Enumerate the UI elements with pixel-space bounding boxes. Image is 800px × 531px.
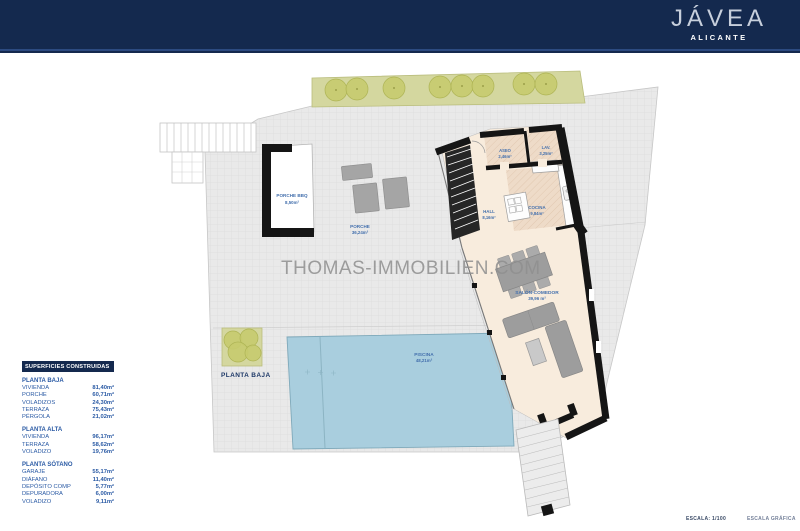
- row-value: 21,02m²: [92, 414, 114, 421]
- table-row: VOLADIZO9,11m²: [22, 499, 114, 506]
- row-value: 19,76m²: [92, 449, 114, 456]
- table-row: TERRAZA58,62m²: [22, 442, 114, 449]
- section-title: PLANTA BAJA: [22, 377, 114, 385]
- row-value: 60,71m²: [92, 392, 114, 399]
- room-label: ASEO: [499, 148, 512, 153]
- planting-strip: [312, 71, 585, 107]
- tree-icons: [224, 329, 261, 362]
- table-row: VOLADIZO19,76m²: [22, 449, 114, 456]
- room-area: 48,21m²: [416, 358, 433, 363]
- row-value: 11,40m²: [93, 477, 114, 484]
- table-row: DIÁFANO11,40m²: [22, 477, 114, 484]
- row-value: 6,00m²: [96, 491, 114, 498]
- row-value: 96,17m²: [92, 434, 114, 441]
- section-rows: VIVIENDA96,17m²TERRAZA58,62m²VOLADIZO19,…: [22, 434, 114, 456]
- garden-square: [222, 328, 262, 366]
- room-label: LAV.: [542, 145, 551, 150]
- room-label: PORCHE: [350, 224, 370, 229]
- room-area: 36,24m²: [352, 230, 369, 235]
- table-section-planta-sotano: PLANTA SÓTANO GARAJE55,17m²DIÁFANO11,40m…: [22, 461, 114, 505]
- row-value: 9,11m²: [96, 499, 114, 506]
- graphic-scale-label: ESCALA GRÁFICA: [747, 516, 796, 522]
- porche-bbq: [262, 144, 314, 237]
- room-label: COCINA: [528, 205, 546, 210]
- table-section-planta-alta: PLANTA ALTA VIVIENDA96,17m²TERRAZA58,62m…: [22, 426, 114, 456]
- areas-table: SUPERFICIES CONSTRUIDAS PLANTA BAJA VIVI…: [22, 361, 114, 506]
- table-row: VIVIENDA96,17m²: [22, 434, 114, 441]
- watermark: THOMAS-IMMOBILIEN.COM: [281, 258, 541, 280]
- room-area: 2,46m²: [498, 154, 512, 159]
- row-label: DEPURADORA: [22, 491, 63, 498]
- row-label: VOLADIZO: [22, 449, 51, 456]
- row-label: PORCHE: [22, 392, 47, 399]
- room-area: 3,25m²: [539, 151, 553, 156]
- section-rows: GARAJE55,17m²DIÁFANO11,40m²DEPÓSITO COMP…: [22, 469, 114, 505]
- table-row: PORCHE60,71m²: [22, 392, 114, 399]
- kitchen-island: [504, 192, 530, 221]
- scale-label: ESCALA: 1/100: [686, 516, 726, 522]
- areas-table-title: SUPERFICIES CONSTRUIDAS: [22, 361, 114, 372]
- room-area: 9,84m²: [530, 211, 544, 216]
- room-label: PORCHE BBQ: [276, 193, 308, 198]
- pool: [287, 333, 514, 449]
- row-label: VOLADIZO: [22, 499, 51, 506]
- row-label: VOLADIZOS: [22, 400, 55, 407]
- row-value: 55,17m²: [92, 469, 114, 476]
- room-label: HALL: [483, 209, 495, 214]
- row-label: VIVIENDA: [22, 434, 49, 441]
- table-section-planta-baja: PLANTA BAJA VIVIENDA81,40m²PORCHE60,71m²…: [22, 377, 114, 421]
- room-area: 39,96 m²: [528, 296, 546, 301]
- room-area: 8,16m²: [482, 215, 496, 220]
- table-row: PÉRGOLA21,02m²: [22, 414, 114, 421]
- room-area: 8,50m²: [285, 200, 299, 205]
- row-label: DIÁFANO: [22, 477, 47, 484]
- row-label: GARAJE: [22, 469, 45, 476]
- row-value: 24,30m²: [92, 400, 114, 407]
- table-row: DEPURADORA6,00m²: [22, 491, 114, 498]
- row-label: DEPÓSITO COMP: [22, 484, 71, 491]
- section-rows: VIVIENDA81,40m²PORCHE60,71m²VOLADIZOS24,…: [22, 385, 114, 421]
- row-label: PÉRGOLA: [22, 414, 50, 421]
- row-label: TERRAZA: [22, 442, 49, 449]
- table-row: GARAJE55,17m²: [22, 469, 114, 476]
- floor-plan-page: PORCHE BBQ 8,50m² PORCHE 36,24m² ASEO 2,…: [0, 0, 800, 531]
- table-row: VOLADIZOS24,30m²: [22, 400, 114, 407]
- floor-label: PLANTA BAJA: [221, 372, 271, 379]
- row-value: 58,62m²: [92, 442, 114, 449]
- row-label: VIVIENDA: [22, 385, 49, 392]
